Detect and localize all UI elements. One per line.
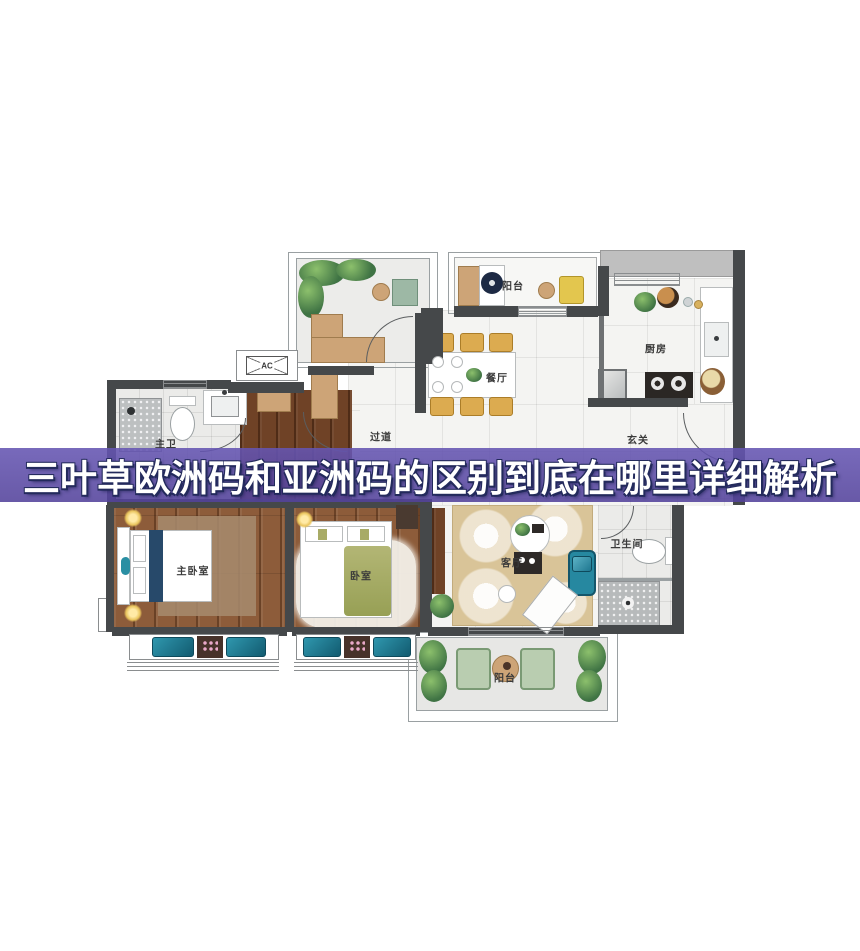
plate-icon [432,356,444,368]
room-label-balcony-top: 阳台 [502,278,524,293]
bay-pillow [152,637,194,657]
wall [588,398,688,407]
toilet-tank [169,396,196,406]
bedside-lamp-icon [124,604,142,622]
burner-icon [671,376,686,391]
plant-icon [419,640,447,674]
dining-chair [489,333,513,352]
shower-divider [598,578,678,581]
vase-icon [121,557,130,575]
food-bowl-icon [657,287,679,308]
wall [672,505,684,632]
yellow-chair [559,276,584,304]
laundry-cabinet [458,266,480,306]
plant-icon [336,259,376,281]
wall [106,505,114,632]
title-banner: 三叶草欧洲码和亚洲码的区别到底在哪里详细解析 [0,448,860,502]
side-table [538,282,555,299]
wall [415,313,426,413]
plant-icon [576,670,602,702]
wall [598,625,684,634]
teacup-icon [529,558,535,564]
pillow [133,567,146,594]
table-books [532,524,544,533]
wall [567,306,598,317]
ball-lamp-icon [498,585,516,603]
table-plant-icon [515,523,530,536]
room-label-entry: 玄关 [627,432,649,447]
bay-pillow [303,637,341,657]
pillow-accent [360,529,369,540]
plant-icon [298,276,324,318]
window [163,380,207,389]
small-bowl-icon [694,300,703,309]
flower-dots [349,640,365,652]
room-label-hallway: 过道 [370,429,392,444]
room-label-bathroom: 卫生间 [611,536,644,551]
wall [598,266,609,316]
bedside-lamp-icon [296,511,313,528]
dresser [396,505,418,529]
coffee-table [510,515,550,555]
banner-title-text: 三叶草欧洲码和亚洲码的区别到底在哪里详细解析 [23,448,837,502]
room-label-dining: 餐厅 [486,370,508,385]
wall [599,316,604,404]
room-label-bedroom: 卧室 [350,568,372,583]
dining-chair [489,397,513,416]
window-frame-lines [127,661,279,671]
plant-icon [578,640,606,674]
wardrobe-cabinet [257,392,291,412]
table-plant-icon [466,368,482,382]
wall [454,306,518,317]
balcony-chair [392,279,418,306]
sliding-door [468,627,564,636]
plate-icon [451,381,463,393]
tv-cabinet [432,508,445,594]
food-plate-icon [634,292,656,312]
ac-label: AC [260,362,274,371]
room-label-living: 客厅 [501,555,523,570]
dining-chair [430,397,454,416]
bay-pillow [373,637,411,657]
room-label-kitchen: 厨房 [645,341,667,356]
wall [285,505,294,632]
room-label-master-bedroom: 主卧室 [177,563,210,578]
faucet-icon [714,336,719,341]
page: AC [0,0,860,951]
plant-icon [421,670,447,702]
plant-icon [430,594,454,618]
small-bowl-icon [683,297,693,307]
pillow-accent [318,529,327,540]
drain-icon [622,597,634,609]
wall [308,366,374,375]
bed-runner [149,530,163,602]
basin-icon [211,396,239,417]
shower-head-icon [127,407,135,415]
window-frame-lines [294,661,418,671]
window [518,306,567,317]
dining-chair [460,333,484,352]
wall [420,505,432,632]
bedside-lamp-icon [124,509,142,527]
pillow [133,535,146,562]
armchair-pillow [572,556,592,572]
faucet-icon [222,390,227,395]
wall [228,382,304,393]
washer-drum-icon [481,272,503,294]
dining-chair [460,397,484,416]
garden-chair [520,648,555,690]
plate-icon [432,381,444,393]
flower-dots [202,640,218,652]
bread-basket-icon [700,368,725,395]
plate-icon [451,356,463,368]
kitchen-window [614,273,680,286]
bay-pillow [226,637,266,657]
room-label-balcony-bottom: 阳台 [494,670,516,685]
rattan-stool [372,283,390,301]
garden-chair [456,648,491,690]
burner-icon [651,377,664,390]
